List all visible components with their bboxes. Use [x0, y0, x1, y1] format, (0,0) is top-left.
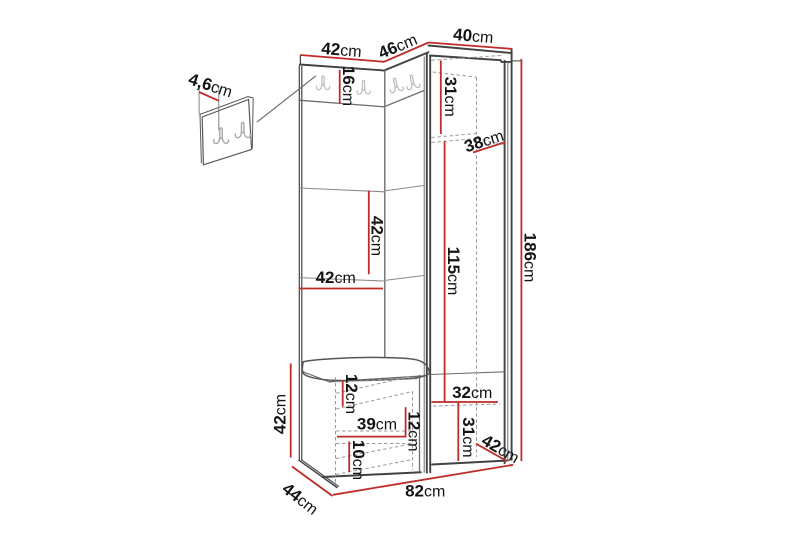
svg-text:31cm: 31cm — [459, 417, 478, 457]
svg-text:39cm: 39cm — [357, 414, 397, 433]
svg-text:42cm: 42cm — [368, 216, 387, 256]
svg-text:115cm: 115cm — [444, 247, 463, 296]
svg-text:16cm: 16cm — [339, 66, 358, 106]
svg-text:42cm: 42cm — [316, 268, 356, 287]
svg-text:10cm: 10cm — [349, 440, 368, 480]
svg-text:31cm: 31cm — [441, 77, 460, 117]
svg-text:32cm: 32cm — [452, 383, 492, 402]
svg-text:186cm: 186cm — [520, 233, 539, 283]
svg-text:12cm: 12cm — [342, 374, 361, 414]
svg-text:42cm: 42cm — [271, 394, 290, 434]
svg-text:82cm: 82cm — [405, 482, 445, 501]
svg-text:12cm: 12cm — [405, 411, 424, 451]
